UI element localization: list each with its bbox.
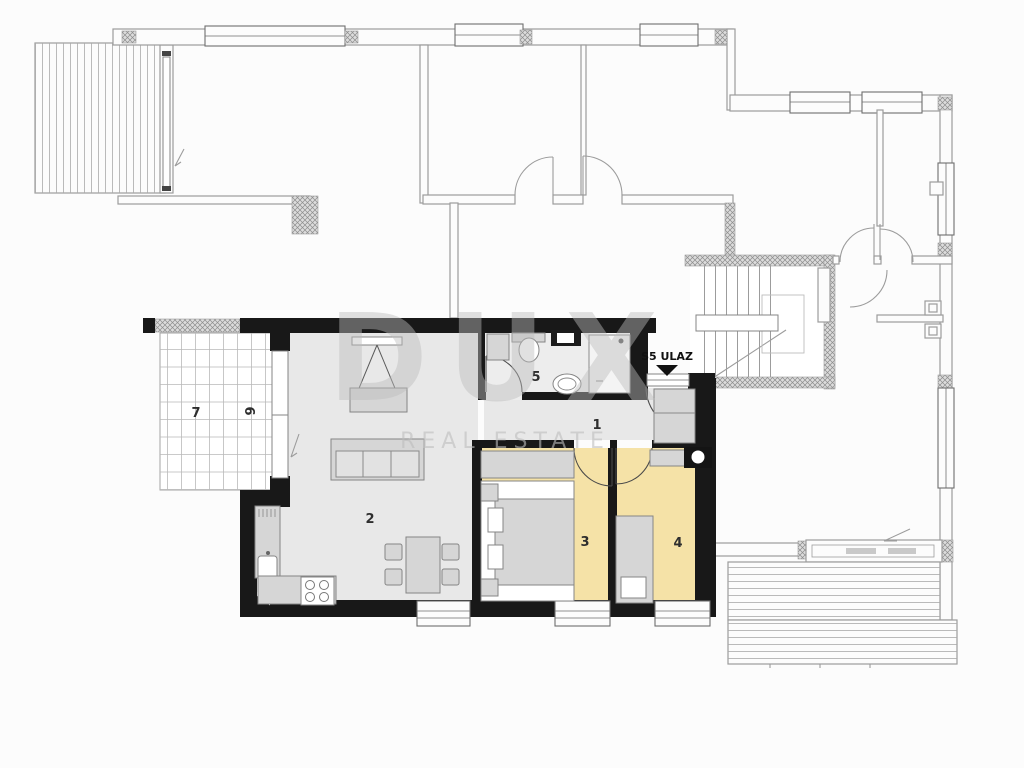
stair-wall-top: [685, 255, 834, 266]
sofa-seat: [336, 451, 419, 477]
door-tick: [162, 186, 171, 191]
staircase: [685, 255, 835, 389]
wall-pier: [938, 243, 952, 257]
wall-anchor: [143, 318, 155, 333]
dining-table: [406, 537, 440, 593]
neighbor-sliding-door-left: [163, 57, 170, 187]
wall-pier: [345, 31, 358, 43]
neighbor-wall: [877, 315, 943, 322]
wall-terrace-stub-top: [270, 333, 290, 351]
neighbor-wall: [877, 110, 883, 226]
room-label-7: 7: [191, 406, 200, 421]
window: [790, 92, 850, 113]
chair: [442, 544, 459, 560]
chair: [442, 569, 459, 585]
neighbor-wall: [622, 195, 733, 204]
chair: [385, 569, 402, 585]
neighbor-wall: [553, 195, 583, 204]
apartment-windows: [417, 601, 710, 626]
bedroom4-wardrobe: [650, 450, 687, 466]
bedroom3-mattress: [495, 499, 574, 585]
room-label-4: 4: [673, 536, 682, 551]
nightstand: [481, 484, 498, 501]
wall-pier: [520, 30, 532, 44]
neighbor-terrace-left-decking: [35, 43, 165, 193]
terrace-sliding-panel: [272, 351, 288, 415]
chair: [385, 544, 402, 560]
neighbor-terrace-bottom-decking: [728, 562, 940, 620]
wall-pier: [715, 30, 727, 44]
door-tick: [162, 51, 171, 56]
wall-left: [240, 505, 257, 600]
wall-terrace-bottom: [240, 490, 290, 507]
neighbor-wall: [713, 543, 806, 556]
neighbor-terrace-bottom2-decking: [728, 620, 957, 664]
window: [862, 92, 922, 113]
stair-handrail: [696, 315, 778, 331]
neighbor-wall: [423, 195, 515, 204]
bedroom3-wardrobe: [481, 451, 574, 478]
radiator-valve: [930, 182, 943, 195]
wall-entrance-right: [688, 373, 715, 390]
neighbor-wall: [912, 256, 952, 264]
window-bedroom4: [655, 601, 710, 626]
pillow: [621, 577, 646, 598]
pillow: [488, 545, 503, 569]
faucet-icon: [266, 551, 270, 555]
neighbor-wall: [420, 45, 428, 203]
stair-wall-bottom: [713, 377, 835, 388]
wall-pier: [292, 196, 318, 234]
wall-pier: [938, 97, 952, 110]
floor-plan: 1 2 3 4 5 6 7 S5 ULAZ DUX REAL ESTATE: [0, 0, 1024, 768]
room-label-2: 2: [365, 512, 374, 527]
boiler-icon: [692, 451, 705, 464]
window-bedroom3: [555, 601, 610, 626]
wall-pier: [122, 31, 136, 43]
stove: [301, 577, 334, 605]
sliding-panel: [888, 548, 916, 554]
neighbor-wall: [118, 196, 310, 204]
wall-door-post: [610, 440, 617, 448]
radiator-valve-inner: [929, 327, 937, 335]
room-label-6: 6: [241, 406, 256, 415]
pillow: [488, 508, 503, 532]
sliding-panel: [846, 548, 876, 554]
window-living: [417, 601, 470, 626]
radiator-valve-inner: [929, 304, 937, 312]
stair-door: [818, 268, 830, 322]
neighbor-wall: [833, 256, 839, 264]
watermark-line1: DUX: [328, 290, 678, 429]
wall-right: [695, 378, 716, 617]
room-label-3: 3: [580, 535, 589, 550]
watermark-line2: REAL ESTATE: [400, 429, 610, 454]
wall-pier: [725, 203, 735, 256]
terrace-sliding-panel: [272, 415, 288, 478]
wall-pier: [938, 375, 952, 388]
nightstand: [481, 579, 498, 596]
neighbor-wall-above-terrace: [155, 319, 240, 332]
